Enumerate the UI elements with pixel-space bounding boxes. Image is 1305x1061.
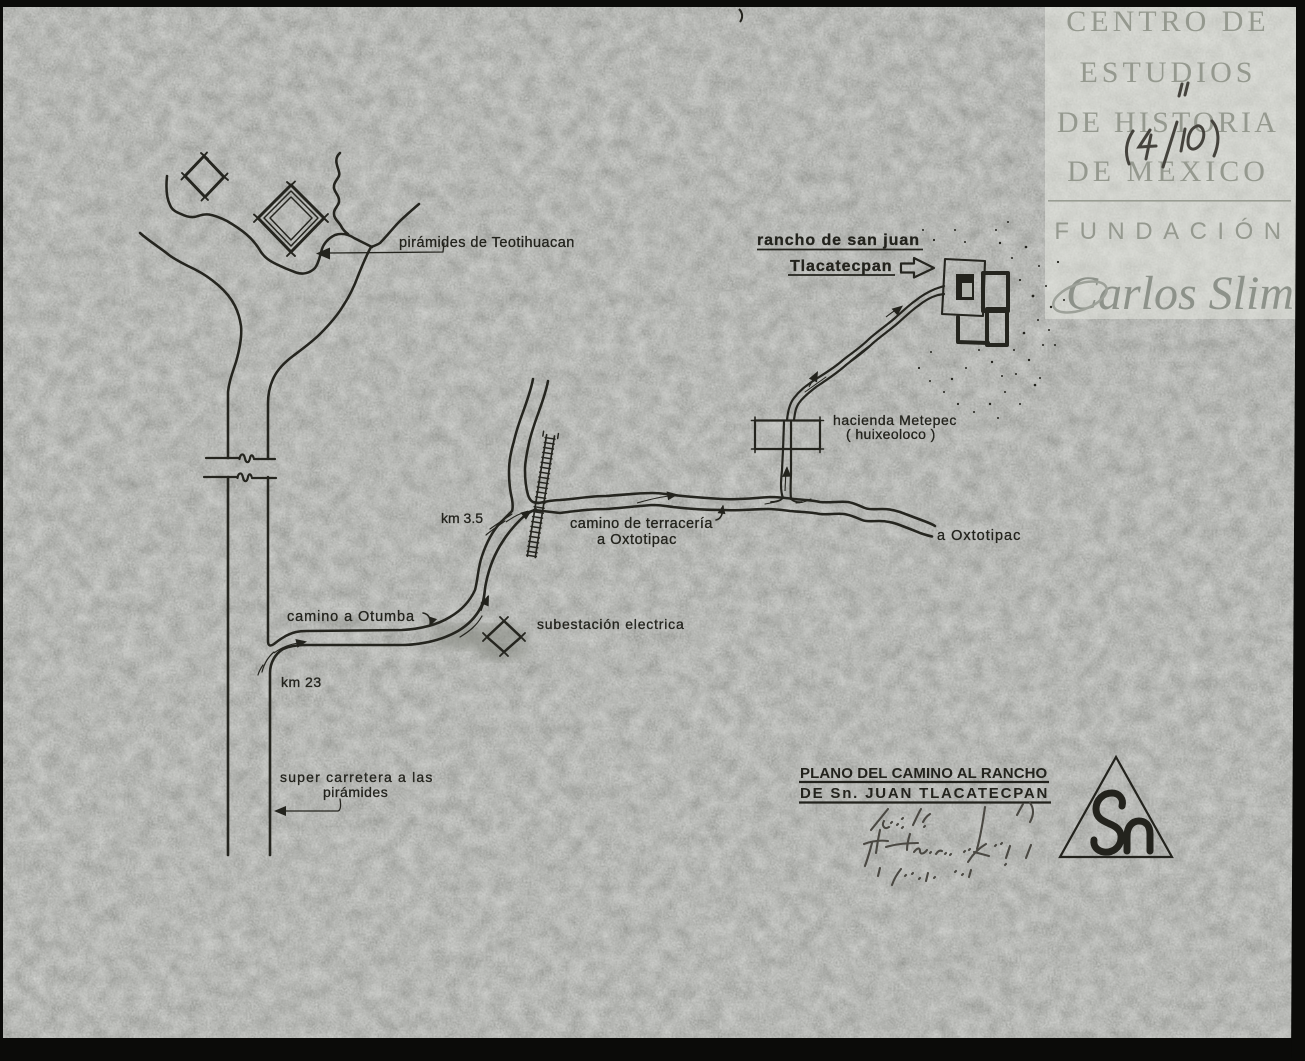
svg-text:Tlacatecpan: Tlacatecpan (790, 258, 892, 275)
svg-text:CENTRO DE: CENTRO DE (1066, 5, 1270, 38)
svg-text:( huixeoloco ): ( huixeoloco ) (846, 426, 936, 442)
svg-text:rancho de san juan: rancho de san juan (757, 232, 920, 249)
svg-text:DE HISTORIA: DE HISTORIA (1057, 106, 1279, 139)
svg-text:a Oxtotipac: a Oxtotipac (597, 532, 677, 548)
svg-text:km 23: km 23 (281, 674, 322, 690)
svg-text:camino de terracería: camino de terracería (570, 516, 713, 532)
svg-text:pirámides de Teotihuacan: pirámides de Teotihuacan (399, 235, 575, 251)
svg-text:ESTUDIOS: ESTUDIOS (1079, 56, 1256, 89)
svg-text:a Oxtotipac: a Oxtotipac (937, 528, 1021, 544)
svg-text:subestación electrica: subestación electrica (537, 616, 685, 632)
svg-text:DE Sn. JUAN TLACATECPAN: DE Sn. JUAN TLACATECPAN (800, 785, 1049, 802)
svg-text:FUNDACIÓN: FUNDACIÓN (1054, 218, 1291, 245)
svg-text:camino a Otumba: camino a Otumba (287, 609, 415, 625)
svg-text:pirámides: pirámides (323, 784, 388, 800)
svg-text:PLANO DEL CAMINO AL RANCHO: PLANO DEL CAMINO AL RANCHO (800, 765, 1048, 782)
svg-text:Carlos Slim: Carlos Slim (1066, 267, 1294, 320)
svg-text:DE MEXICO: DE MEXICO (1067, 155, 1269, 188)
svg-text:super carretera a las: super carretera a las (280, 769, 434, 785)
svg-text:km 3.5: km 3.5 (441, 510, 483, 526)
